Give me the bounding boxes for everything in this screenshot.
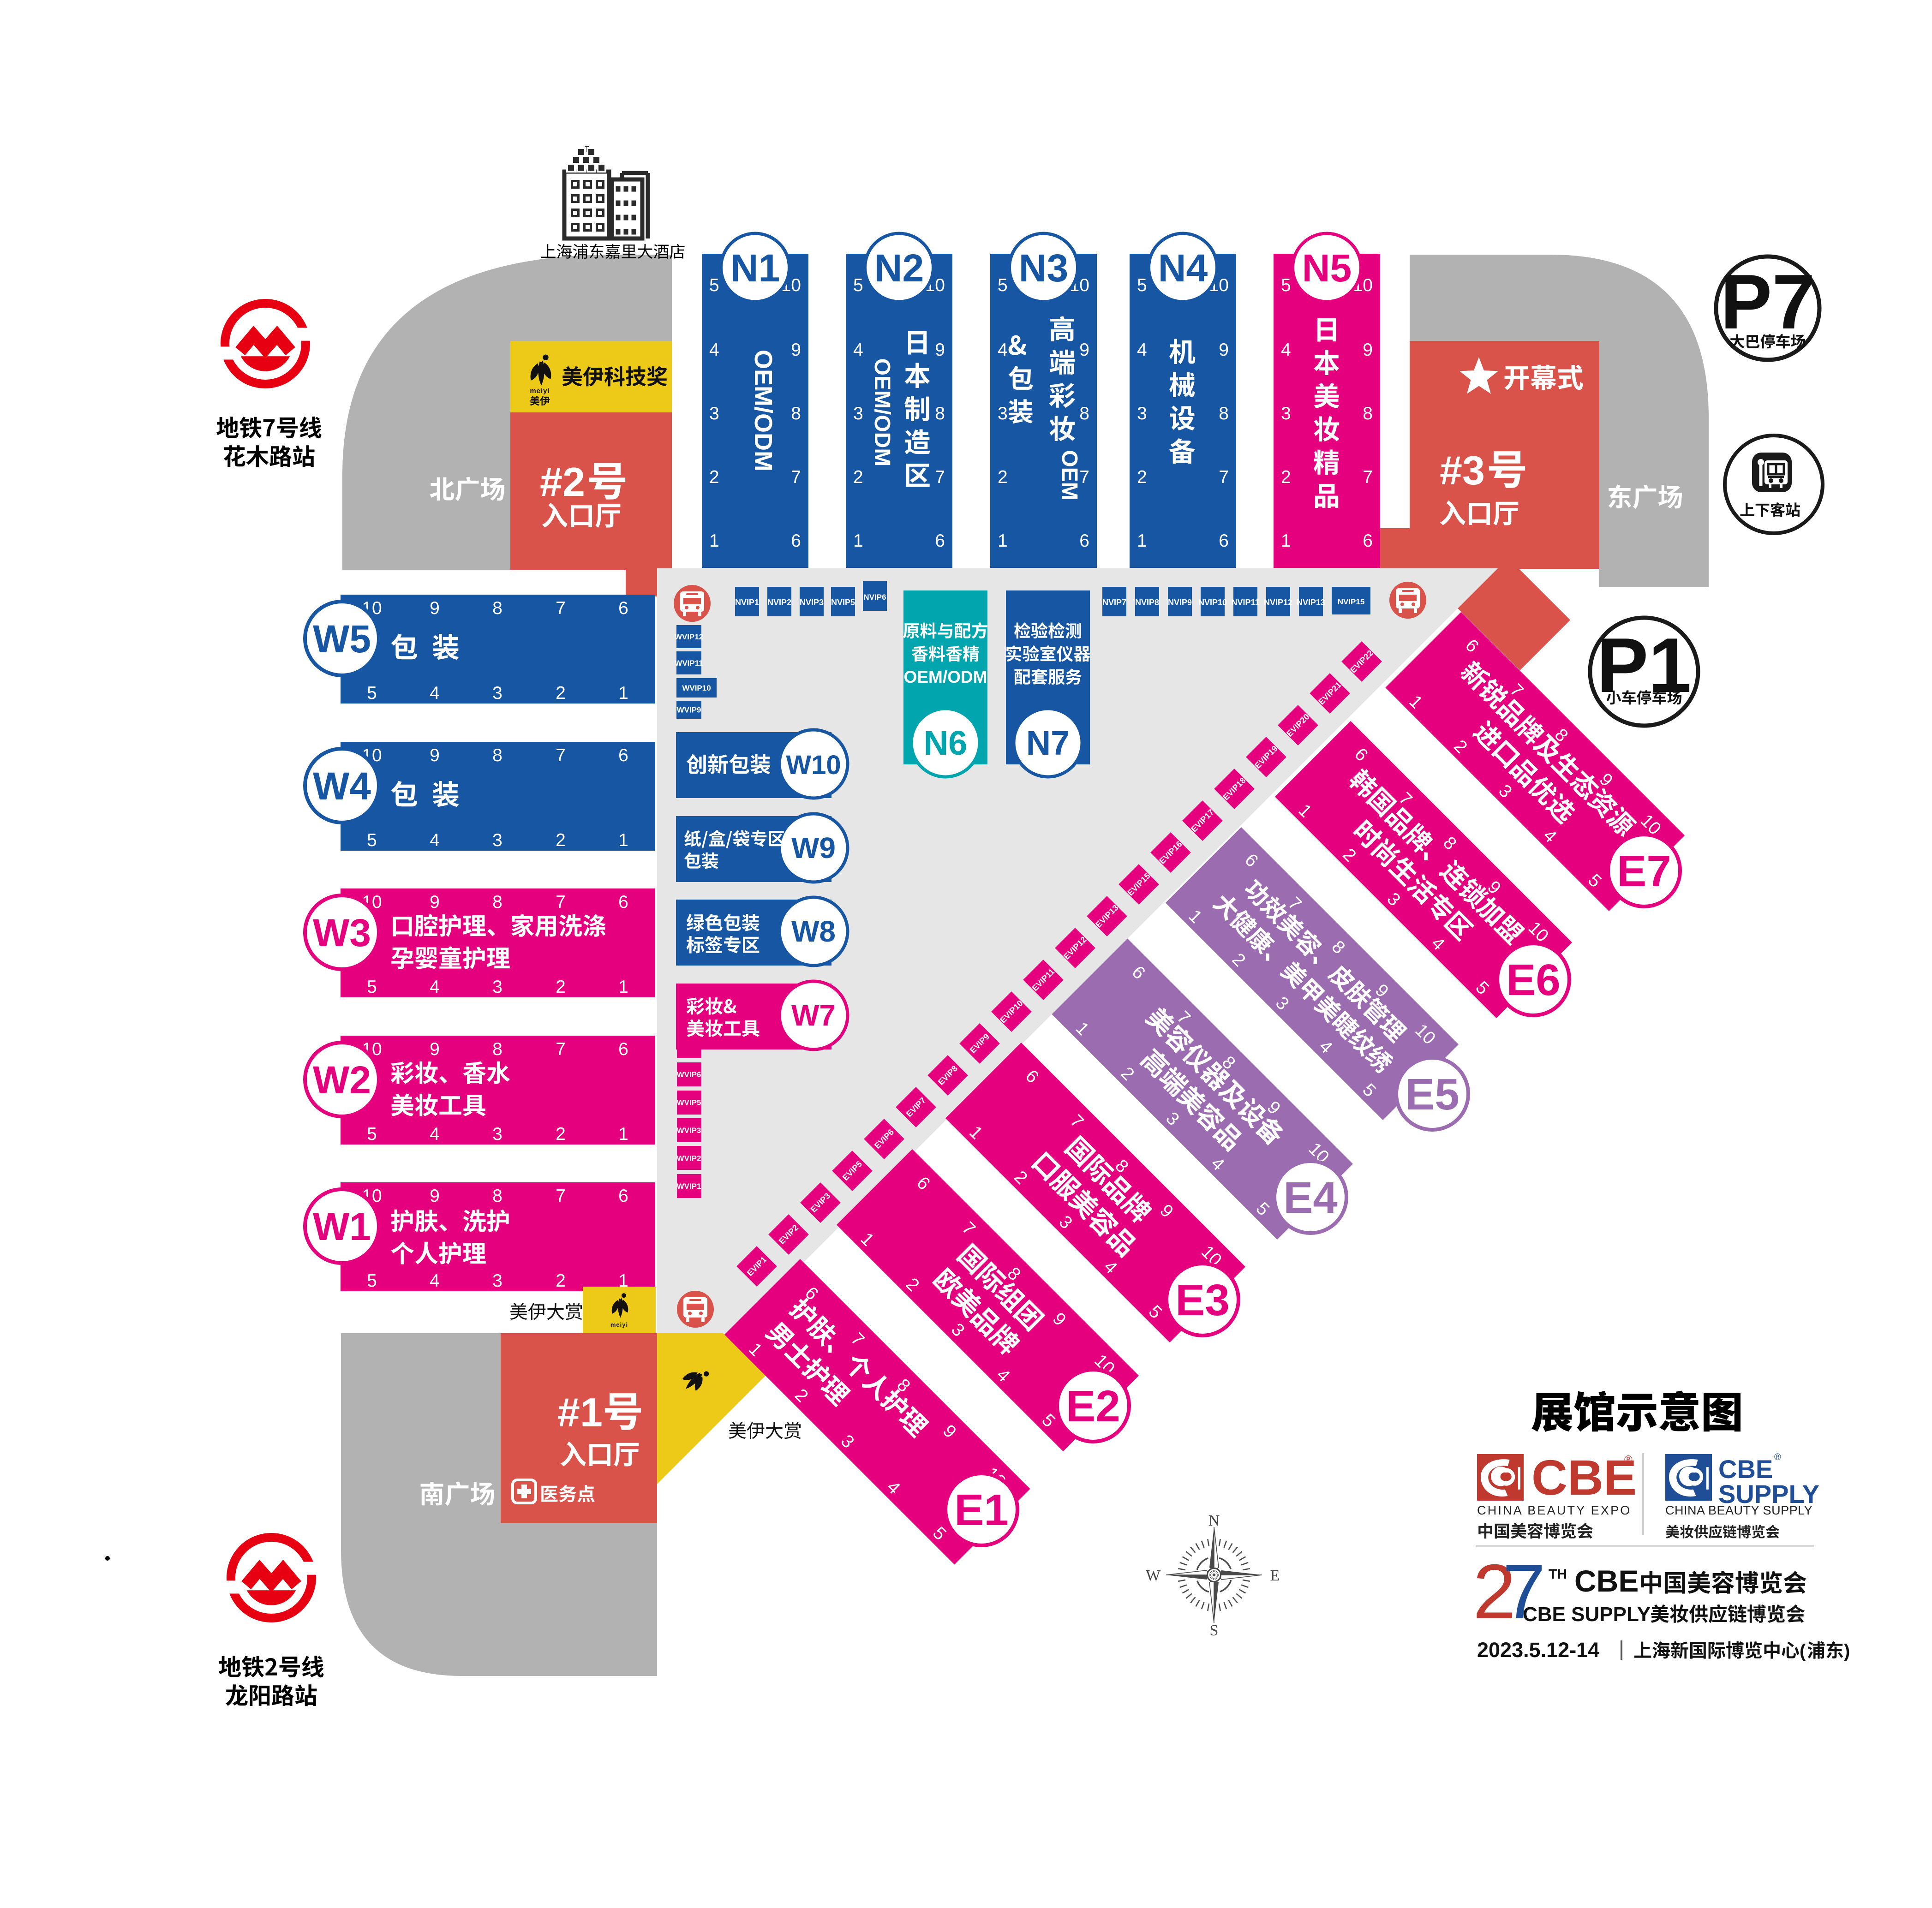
svg-text:WVIP10: WVIP10	[682, 684, 711, 692]
svg-text:WVIP12: WVIP12	[675, 632, 703, 641]
svg-text:W4: W4	[313, 764, 371, 808]
svg-text:meiyi: meiyi	[610, 1321, 628, 1328]
svg-text:7: 7	[556, 892, 566, 912]
svg-text:4: 4	[853, 340, 863, 360]
svg-text:7: 7	[935, 467, 945, 487]
svg-text:6: 6	[935, 531, 945, 551]
svg-text:OEM/ODM: OEM/ODM	[749, 350, 777, 471]
svg-text:NVIP2: NVIP2	[767, 598, 791, 607]
svg-text:P7: P7	[1720, 258, 1815, 345]
svg-text:®: ®	[1774, 1452, 1781, 1462]
svg-text:W7: W7	[791, 999, 836, 1032]
svg-text:1: 1	[1137, 531, 1147, 551]
svg-text:9: 9	[430, 892, 440, 912]
svg-text:NVIP15: NVIP15	[1338, 597, 1365, 606]
svg-text:N3: N3	[1019, 246, 1068, 290]
svg-text:WVIP11: WVIP11	[675, 659, 703, 668]
svg-text:4: 4	[430, 683, 440, 703]
svg-text:1: 1	[618, 830, 628, 850]
svg-text:NVIP3: NVIP3	[800, 598, 824, 607]
svg-text:2: 2	[556, 1271, 566, 1291]
svg-text:6: 6	[618, 1186, 628, 1206]
svg-text:W2: W2	[313, 1058, 371, 1102]
svg-text:(: (	[1800, 1641, 1806, 1661]
svg-text:E5: E5	[1405, 1070, 1459, 1119]
svg-text:OEM/ODM: OEM/ODM	[870, 358, 894, 467]
svg-text:#3: #3	[1440, 447, 1485, 493]
svg-text:): )	[1844, 1641, 1850, 1661]
svg-text:4: 4	[430, 830, 440, 850]
svg-text:S: S	[1210, 1622, 1219, 1639]
svg-text:3: 3	[1281, 404, 1291, 423]
svg-text:5: 5	[1281, 275, 1291, 295]
svg-text:7: 7	[556, 1039, 566, 1059]
svg-text:5: 5	[367, 683, 377, 703]
svg-text:8: 8	[492, 892, 502, 912]
svg-text:NVIP10: NVIP10	[1198, 598, 1227, 607]
svg-text:N2: N2	[874, 246, 924, 290]
svg-text:W1: W1	[313, 1205, 371, 1248]
svg-text:WVIP3: WVIP3	[677, 1126, 701, 1135]
svg-text:6: 6	[1079, 531, 1089, 551]
svg-text:TH: TH	[1549, 1567, 1567, 1582]
svg-text:7: 7	[1219, 467, 1229, 487]
svg-text:6: 6	[618, 892, 628, 912]
svg-text:W10: W10	[786, 750, 841, 780]
svg-text:NVIP8: NVIP8	[1135, 598, 1159, 607]
svg-text:8: 8	[1219, 404, 1229, 423]
svg-text:1: 1	[998, 531, 1008, 551]
svg-text:NVIP13: NVIP13	[1297, 598, 1325, 607]
svg-text:8: 8	[791, 404, 801, 423]
svg-text:WVIP5: WVIP5	[677, 1098, 701, 1107]
svg-text:2: 2	[556, 977, 566, 997]
svg-text:7: 7	[556, 745, 566, 765]
svg-text:NVIP6: NVIP6	[863, 593, 886, 602]
svg-text:W9: W9	[791, 831, 836, 865]
svg-text:2: 2	[1137, 467, 1147, 487]
svg-text:6: 6	[791, 531, 801, 551]
svg-text:8: 8	[1363, 404, 1373, 423]
svg-text:E1: E1	[954, 1485, 1008, 1535]
svg-text:E7: E7	[1617, 847, 1671, 896]
svg-text:3: 3	[853, 404, 863, 423]
svg-text:NVIP7: NVIP7	[1102, 598, 1126, 607]
svg-text:#1: #1	[557, 1389, 603, 1435]
svg-text:®: ®	[1624, 1454, 1633, 1466]
svg-text:E3: E3	[1175, 1276, 1229, 1325]
svg-text:3: 3	[1137, 404, 1147, 423]
svg-text:E: E	[1270, 1567, 1280, 1584]
svg-text:3: 3	[492, 1124, 502, 1144]
svg-text:9: 9	[430, 598, 440, 618]
svg-text:W5: W5	[313, 617, 371, 661]
svg-text:1: 1	[618, 683, 628, 703]
svg-text:5: 5	[367, 977, 377, 997]
svg-text:NVIP9: NVIP9	[1168, 598, 1192, 607]
svg-text:W8: W8	[791, 915, 836, 948]
svg-text:CBE: CBE	[1574, 1564, 1639, 1598]
svg-text:N7: N7	[1026, 724, 1070, 762]
svg-text:2023.5.12-14: 2023.5.12-14	[1477, 1638, 1599, 1662]
svg-text:5: 5	[367, 1271, 377, 1291]
svg-text:8: 8	[492, 745, 502, 765]
svg-text:CHINA BEAUTY EXPO: CHINA BEAUTY EXPO	[1477, 1503, 1632, 1517]
svg-text:N: N	[1208, 1512, 1220, 1529]
svg-text:3: 3	[492, 1271, 502, 1291]
svg-text:2: 2	[556, 830, 566, 850]
svg-text:1: 1	[618, 977, 628, 997]
svg-text:N5: N5	[1302, 246, 1352, 290]
svg-text:1: 1	[853, 531, 863, 551]
svg-text:E4: E4	[1283, 1173, 1337, 1222]
svg-text:W: W	[1146, 1567, 1161, 1584]
svg-text:9: 9	[1219, 340, 1229, 360]
svg-text:OEM/ODM: OEM/ODM	[904, 668, 987, 686]
svg-text:3: 3	[998, 404, 1008, 423]
svg-text:4: 4	[1281, 340, 1291, 360]
svg-text:9: 9	[935, 340, 945, 360]
svg-text:meiyi: meiyi	[530, 387, 550, 395]
svg-text:3: 3	[709, 404, 719, 423]
svg-text:N6: N6	[924, 724, 968, 762]
svg-text:W3: W3	[313, 911, 371, 954]
svg-text:WVIP2: WVIP2	[677, 1154, 701, 1163]
svg-text:8: 8	[1079, 404, 1089, 423]
svg-text:CBE: CBE	[1531, 1449, 1637, 1505]
svg-text:1: 1	[618, 1124, 628, 1144]
svg-text:2: 2	[1281, 467, 1291, 487]
svg-text:5: 5	[998, 275, 1008, 295]
svg-text:7: 7	[791, 467, 801, 487]
svg-text:7: 7	[556, 1186, 566, 1206]
svg-text:4: 4	[430, 1124, 440, 1144]
svg-text:8: 8	[935, 404, 945, 423]
svg-text:7: 7	[556, 598, 566, 618]
svg-text:7: 7	[1363, 467, 1373, 487]
svg-text:9: 9	[791, 340, 801, 360]
svg-text:6: 6	[1219, 531, 1229, 551]
svg-text:E6: E6	[1506, 955, 1560, 1005]
svg-text:3: 3	[492, 977, 502, 997]
svg-text:4: 4	[998, 340, 1008, 360]
svg-text:6: 6	[618, 1039, 628, 1059]
svg-text:2: 2	[556, 683, 566, 703]
svg-text:8: 8	[492, 1039, 502, 1059]
svg-text:2: 2	[853, 467, 863, 487]
svg-text:4: 4	[430, 977, 440, 997]
svg-text:WVIP9: WVIP9	[677, 706, 701, 715]
svg-text:4: 4	[1137, 340, 1147, 360]
svg-text:CHINA BEAUTY SUPPLY: CHINA BEAUTY SUPPLY	[1665, 1503, 1812, 1517]
svg-text:N1: N1	[730, 246, 780, 290]
svg-text:WVIP6: WVIP6	[677, 1070, 701, 1079]
svg-text:9: 9	[430, 1039, 440, 1059]
svg-text:NVIP5: NVIP5	[831, 598, 855, 607]
svg-text:#2: #2	[540, 459, 585, 505]
svg-text:CBE SUPPLY: CBE SUPPLY	[1523, 1603, 1651, 1626]
svg-text:NVIP11: NVIP11	[1231, 598, 1259, 607]
svg-text:9: 9	[430, 1186, 440, 1206]
svg-text:NVIP1: NVIP1	[735, 598, 759, 607]
svg-text:WVIP1: WVIP1	[677, 1182, 701, 1191]
svg-text:6: 6	[1363, 531, 1373, 551]
svg-text:6: 6	[618, 598, 628, 618]
svg-text:1: 1	[709, 531, 719, 551]
svg-text:N4: N4	[1158, 246, 1208, 290]
svg-text:5: 5	[709, 275, 719, 295]
svg-text:1: 1	[1281, 531, 1291, 551]
svg-text:9: 9	[1363, 340, 1373, 360]
svg-text:NVIP12: NVIP12	[1264, 598, 1292, 607]
svg-text:3: 3	[492, 830, 502, 850]
svg-text:5: 5	[853, 275, 863, 295]
svg-text:2: 2	[709, 467, 719, 487]
svg-text:8: 8	[492, 1186, 502, 1206]
svg-text:4: 4	[709, 340, 719, 360]
svg-text:E2: E2	[1066, 1382, 1120, 1431]
svg-text:9: 9	[430, 745, 440, 765]
svg-text:3: 3	[492, 683, 502, 703]
svg-text:5: 5	[1137, 275, 1147, 295]
svg-text:6: 6	[618, 745, 628, 765]
svg-text:2: 2	[998, 467, 1008, 487]
svg-text:4: 4	[430, 1271, 440, 1291]
svg-text:5: 5	[367, 1124, 377, 1144]
svg-text:OEM: OEM	[1057, 450, 1082, 500]
svg-text:9: 9	[1079, 340, 1089, 360]
svg-text:8: 8	[492, 598, 502, 618]
svg-text:2: 2	[556, 1124, 566, 1144]
svg-text:5: 5	[367, 830, 377, 850]
